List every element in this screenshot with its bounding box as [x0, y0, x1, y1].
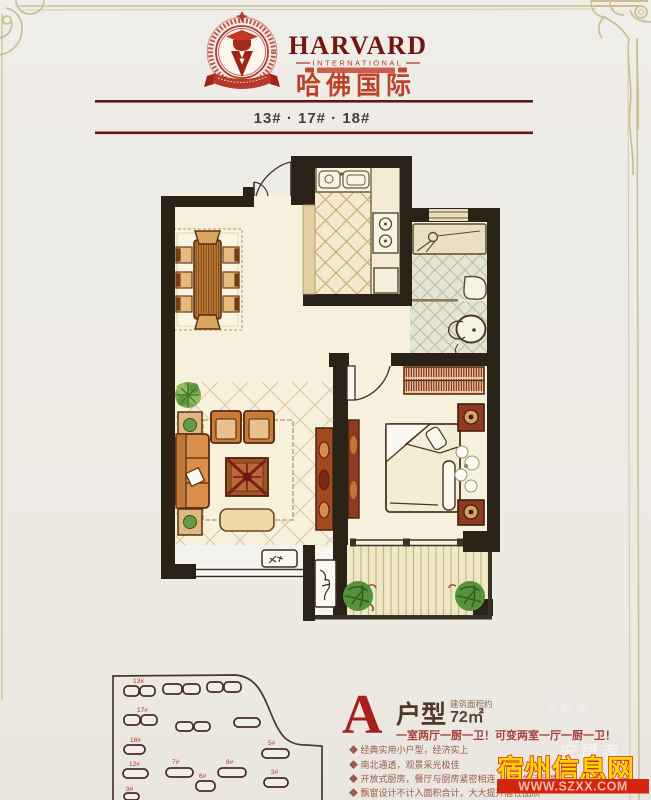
- svg-text:13#: 13#: [133, 678, 144, 685]
- svg-text:5#: 5#: [268, 740, 276, 747]
- svg-text:8#: 8#: [226, 759, 234, 766]
- svg-text:一室两厅一厨一卫！可变两室一厅一厨一卫！: 一室两厅一厨一卫！可变两室一厅一厨一卫！: [396, 728, 616, 742]
- svg-text:A: A: [342, 684, 383, 746]
- svg-text:建筑面积约: 建筑面积约: [450, 699, 493, 709]
- svg-text:18#: 18#: [130, 737, 141, 744]
- svg-text:3#: 3#: [271, 769, 279, 776]
- svg-text:72㎡: 72㎡: [450, 707, 484, 726]
- svg-text:安居客: 安居客: [545, 700, 593, 715]
- svg-text:9#: 9#: [126, 786, 134, 793]
- svg-text:INTERNATIONAL: INTERNATIONAL: [313, 59, 404, 68]
- svg-text:◆ 经典实用小户型，经济实上: ◆ 经典实用小户型，经济实上: [349, 744, 469, 755]
- svg-text:17#: 17#: [137, 707, 148, 714]
- svg-text:户型: 户型: [396, 700, 446, 729]
- svg-text:7#: 7#: [172, 759, 180, 766]
- svg-text:◆ 南北通透，观景采光极佳: ◆ 南北通透，观景采光极佳: [349, 759, 460, 770]
- svg-text:WWW.SZXX.COM: WWW.SZXX.COM: [518, 780, 627, 794]
- svg-text:13# · 17# · 18#: 13# · 17# · 18#: [254, 110, 371, 127]
- svg-text:6#: 6#: [199, 773, 207, 780]
- svg-text:12#: 12#: [129, 761, 140, 768]
- svg-text:HARVARD: HARVARD: [288, 31, 427, 60]
- svg-text:哈佛国际: 哈佛国际: [296, 72, 416, 100]
